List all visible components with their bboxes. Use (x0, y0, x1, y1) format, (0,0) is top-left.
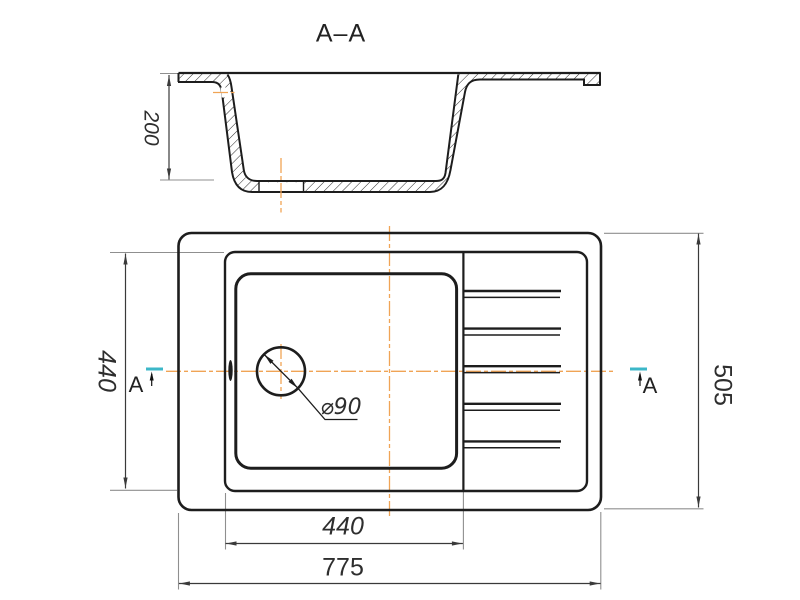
arrow-up-left (263, 353, 274, 364)
section-title: A–A (316, 22, 366, 47)
dimension-label-bowl-width-440: 440 (322, 515, 364, 540)
dimension-label-bowl-height-440: 440 (94, 350, 119, 392)
arrow-right (590, 581, 601, 585)
section-view (178, 73, 601, 192)
arrow-down (696, 497, 700, 508)
arrow-up (150, 372, 154, 381)
technical-drawing-svg (0, 0, 800, 600)
overflow-slot (228, 360, 232, 381)
drain-diameter-label: ⌀90 (320, 397, 361, 419)
dimension-label-depth-200: 200 (141, 110, 162, 145)
arrow-up (696, 234, 700, 245)
drainboard-ridges (464, 291, 561, 448)
arrow-up (123, 254, 127, 265)
drawing-canvas: A–A 200 440 505 440 775 ⌀90 A A (0, 0, 800, 600)
section-marker-letter-right: A (643, 375, 658, 397)
arrow-down (123, 478, 127, 489)
arrow-down-right (288, 379, 299, 390)
dimension-label-overall-depth-505: 505 (710, 364, 735, 406)
arrow-down (167, 169, 171, 180)
section-bowl-cavity (228, 74, 459, 181)
arrow-left (226, 541, 237, 545)
arrow-up (638, 372, 642, 381)
dimension-label-overall-width-775: 775 (322, 556, 364, 581)
arrow-right (452, 541, 463, 545)
arrow-left (179, 581, 190, 585)
arrow-up (167, 76, 171, 87)
section-marker-letter-left: A (129, 374, 144, 396)
